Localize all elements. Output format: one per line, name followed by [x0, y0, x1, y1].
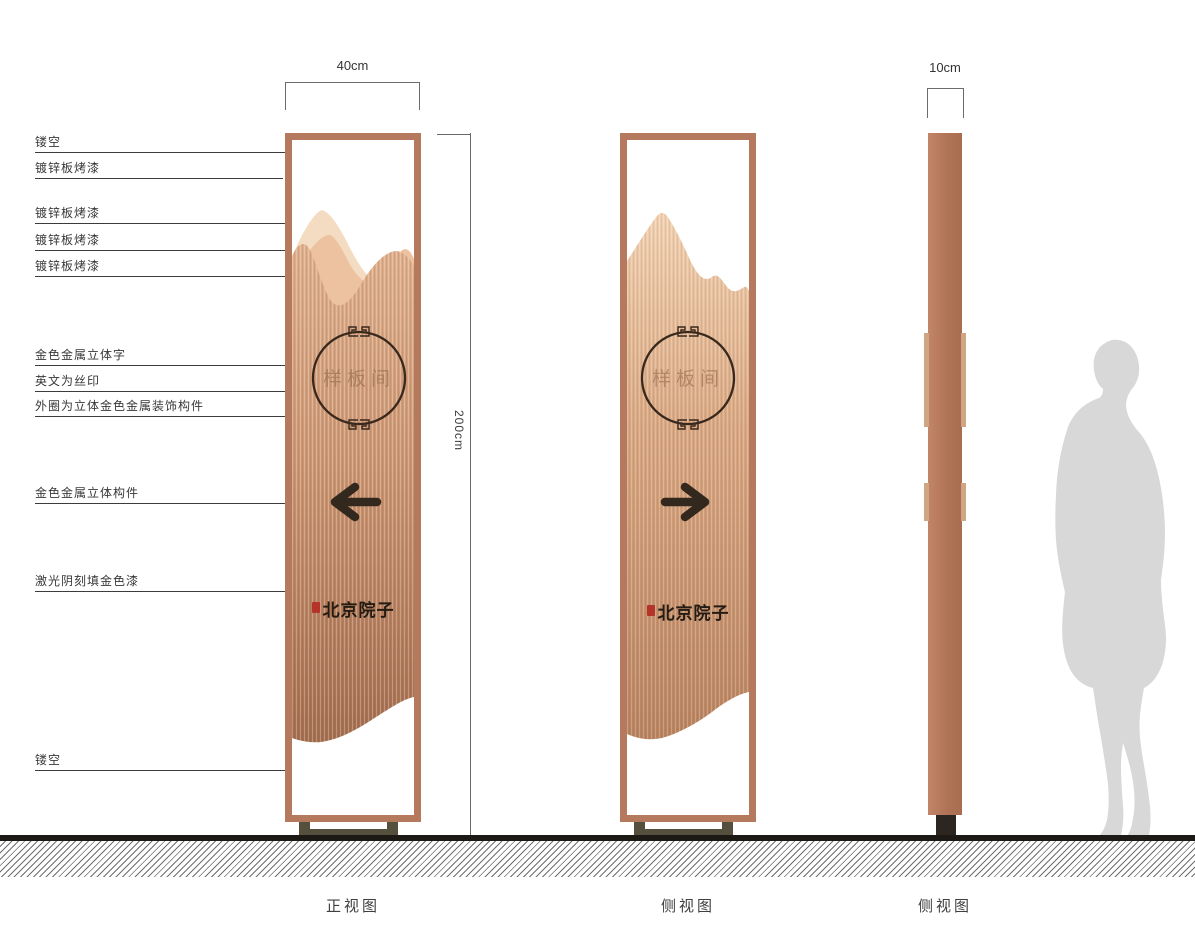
callout-label: 外圈为立体金色金属装饰构件 — [35, 397, 204, 414]
dim-height-tick — [437, 134, 470, 135]
front-panel-artwork: 样板间 — [292, 140, 414, 815]
seal-stamp-icon — [647, 605, 655, 616]
callout-galvanized-4: 镀锌板烤漆 — [35, 256, 296, 277]
profile-arrow-tab — [961, 483, 966, 521]
dim-front-width-label: 40cm — [285, 58, 420, 73]
brand-text: 北京院子 — [658, 604, 730, 624]
dim-profile-width-label: 10cm — [900, 60, 990, 75]
dim-front-width-bracket — [285, 82, 420, 110]
caption-side-view: 侧视图 — [620, 895, 756, 916]
wood-grain-texture — [627, 213, 749, 739]
callout-outer-ring: 外圈为立体金色金属装饰构件 — [35, 396, 318, 417]
callout-label: 镀锌板烤漆 — [35, 159, 100, 176]
callout-label: 英文为丝印 — [35, 372, 100, 389]
callout-label: 金色金属立体构件 — [35, 484, 139, 501]
front-view-panel: 样板间 — [285, 133, 421, 822]
profile-ring-tab — [924, 333, 929, 427]
callout-label: 激光阴刻填金色漆 — [35, 572, 139, 589]
room-name-label: 样板间 — [323, 368, 395, 390]
callout-galvanized-1: 镀锌板烤漆 — [35, 158, 283, 179]
room-name-label: 样板间 — [652, 368, 724, 390]
callout-label: 镀锌板烤漆 — [35, 204, 100, 221]
profile-ring-tab — [961, 333, 966, 427]
callout-label: 镀锌板烤漆 — [35, 257, 100, 274]
side-view-panel: 样板间 — [620, 133, 756, 822]
callout-hollow-bottom: 镂空 — [35, 750, 303, 771]
callout-galvanized-2: 镀锌板烤漆 — [35, 203, 322, 224]
callout-label: 镂空 — [35, 133, 61, 150]
dim-profile-width-bracket — [927, 88, 964, 118]
human-silhouette — [1042, 336, 1194, 838]
brand-calligraphy: 北京院子 — [620, 599, 756, 624]
callout-label: 镂空 — [35, 751, 61, 768]
profile-base-block — [936, 815, 956, 836]
side-panel-artwork: 样板间 — [627, 140, 749, 815]
brand-text: 北京院子 — [323, 601, 395, 621]
dim-height-line — [470, 133, 471, 836]
seal-stamp-icon — [312, 602, 320, 613]
dim-height-label: 200cm — [452, 410, 466, 451]
callout-label: 金色金属立体字 — [35, 346, 126, 363]
caption-front-view: 正视图 — [285, 895, 421, 916]
callout-galvanized-3: 镀锌板烤漆 — [35, 230, 295, 251]
signage-drawing-canvas: 镂空 镀锌板烤漆 镀锌板烤漆 镀锌板烤漆 镀锌板烤漆 金色金属立体字 英文为丝印… — [0, 0, 1195, 927]
brand-calligraphy: 北京院子 — [285, 596, 421, 621]
callout-label: 镀锌板烤漆 — [35, 231, 100, 248]
caption-profile-view: 侧视图 — [877, 895, 1013, 916]
ground-hatch — [0, 841, 1195, 877]
callout-hollow-top: 镂空 — [35, 132, 307, 153]
profile-arrow-tab — [924, 483, 929, 521]
side-profile-panel — [928, 133, 962, 815]
